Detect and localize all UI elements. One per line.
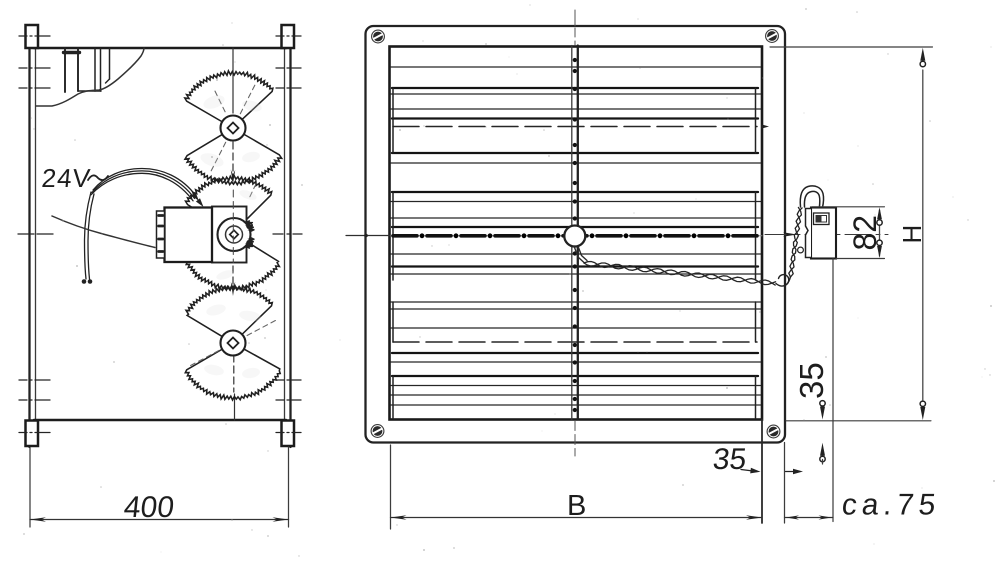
svg-text:B: B <box>567 490 586 522</box>
svg-text:24V: 24V <box>40 163 92 193</box>
svg-text:35: 35 <box>711 443 748 476</box>
svg-text:35: 35 <box>793 362 830 399</box>
svg-text:H: H <box>897 225 927 244</box>
svg-text:400: 400 <box>122 491 176 524</box>
svg-text:ca.75: ca.75 <box>840 489 942 522</box>
svg-text:82: 82 <box>847 215 883 251</box>
